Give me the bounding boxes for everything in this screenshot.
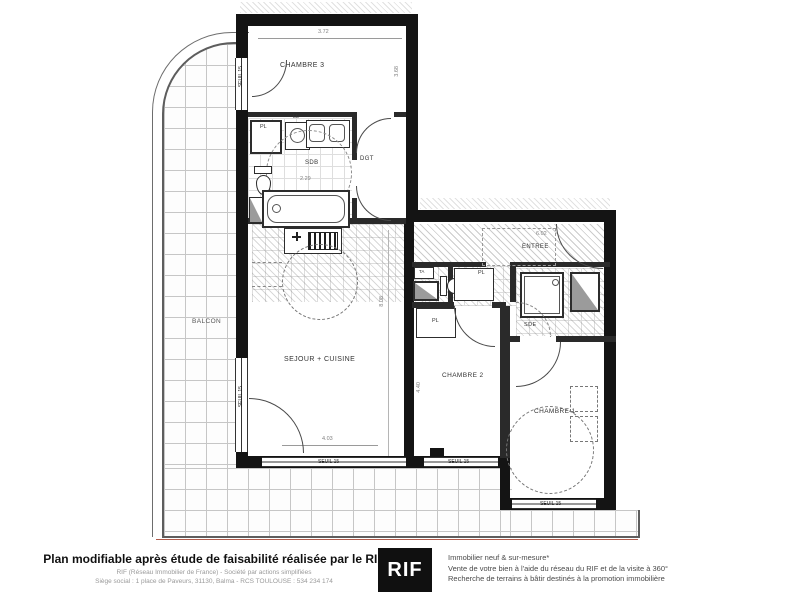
door-arc-dgt-bottom — [356, 186, 391, 221]
partition — [510, 262, 516, 302]
technical-shaft-icon — [415, 283, 437, 299]
door-arc-sejour-balcony — [249, 398, 304, 453]
door-arc-chambre2 — [454, 306, 495, 347]
door-arc-chambre3 — [252, 60, 287, 97]
wall — [406, 210, 616, 222]
dim-chambre3-height: 3.68 — [394, 66, 400, 77]
sejour-label: SEJOUR + CUISINE — [284, 356, 355, 363]
window-chambre1-label: SEUIL 15 — [540, 501, 561, 507]
dim-sejour-width: 4.03 — [322, 436, 333, 442]
pl-label-hall: PL — [478, 270, 485, 276]
toilet-wc-tank — [440, 276, 447, 296]
entry-guide-rect — [482, 228, 556, 266]
exterior-hatch-top — [240, 2, 412, 13]
floor-plan-page: BALCON SEUIL 15 SEUIL 15 SEUIL 15 SEUIL … — [0, 0, 800, 600]
chambre2-label: CHAMBRE 2 — [442, 372, 484, 379]
shaft-box-wc — [413, 281, 439, 301]
wall — [236, 232, 248, 358]
furniture-dashed — [570, 386, 598, 412]
wall — [236, 110, 248, 234]
turning-circle-kitchen — [282, 244, 358, 320]
wall — [404, 222, 414, 468]
rif-logo: RIF — [378, 548, 432, 592]
closet-pl-hall — [454, 268, 494, 301]
partition — [248, 112, 356, 117]
partition — [556, 336, 616, 342]
ll-label: LL — [293, 114, 299, 120]
window-sejour-left-label: SEUIL 15 — [238, 386, 244, 407]
rif-logo-text: RIF — [387, 559, 422, 582]
bathtub-drain — [272, 204, 281, 213]
service-line-3: Recherche de terrains à bâtir destinés à… — [448, 574, 668, 585]
window-chambre2-label: SEUIL 15 — [448, 459, 469, 465]
pl-label-chambre2: PL — [432, 318, 439, 324]
dim-line-sejour — [388, 230, 389, 456]
furniture-dashed — [570, 416, 598, 442]
service-line-1: Immobilier neuf & sur-mesure* — [448, 553, 668, 564]
balcony-railing-accent-line — [156, 539, 638, 540]
window-chambre3-label: SEUIL 15 — [238, 66, 244, 87]
partition — [394, 112, 406, 117]
kitchen-dash-line — [252, 286, 282, 287]
kitchen-tap-icon — [296, 232, 298, 241]
ta-label: TA — [419, 269, 424, 274]
footer-subline2: Siège social : 1 place de Paveurs, 31130… — [38, 578, 390, 585]
footer-headline: Plan modifiable après étude de faisabili… — [38, 552, 390, 566]
balcony-bottom-right-strip — [510, 510, 640, 538]
footer-subline1: RIF (Réseau Immobilier de France) - Soci… — [38, 569, 390, 576]
service-line-2: Vente de votre bien à l'aide du réseau d… — [448, 564, 668, 575]
footer-services: Immobilier neuf & sur-mesure* Vente de v… — [448, 553, 668, 585]
technical-shaft-icon — [250, 198, 262, 222]
wall — [236, 14, 418, 26]
window-sejour-bottom-label: SEUIL 15 — [318, 459, 339, 465]
exterior-hatch-wing — [420, 198, 610, 209]
shaft-box-sdb — [249, 197, 263, 223]
door-arc-chambre1 — [516, 342, 561, 387]
kitchen-dash-line — [252, 262, 282, 263]
pl-label-sdb: PL — [260, 124, 267, 130]
shower-drain — [552, 279, 559, 286]
dim-chambre3-width: 3.72 — [318, 29, 329, 35]
wall — [406, 14, 418, 214]
dim-sejour-height: 8.08 — [379, 296, 385, 307]
toilet-sdb-tank — [254, 166, 272, 174]
balcon-label: BALCON — [192, 318, 221, 325]
dim-line — [258, 38, 402, 39]
technical-shaft-icon — [572, 274, 598, 310]
dim-chambre2-height: 4.40 — [416, 382, 422, 393]
radiator-sejour — [430, 448, 444, 457]
balcony-bottom-strip — [162, 468, 512, 538]
wall — [236, 14, 248, 60]
dgt-label: DGT — [360, 156, 374, 162]
shaft-box-sde — [570, 272, 600, 312]
door-arc-dgt-top — [356, 118, 391, 153]
